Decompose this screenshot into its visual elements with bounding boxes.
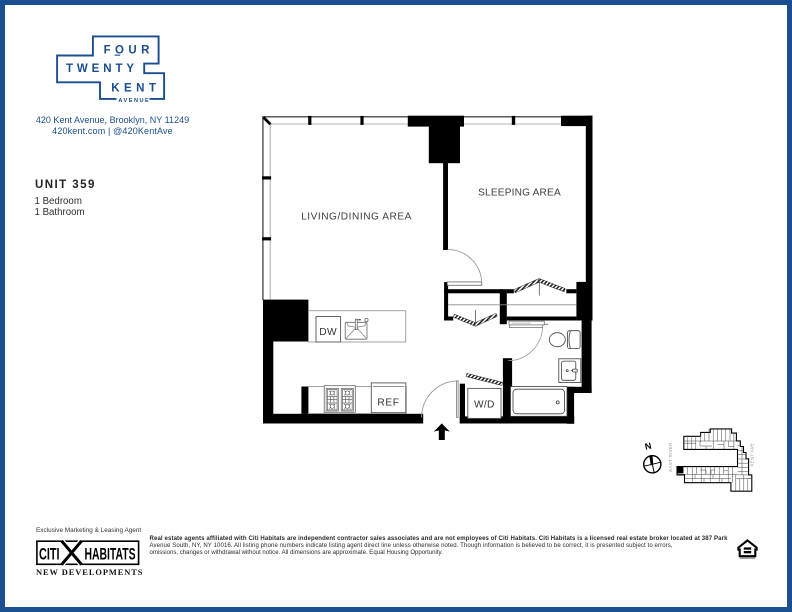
svg-text:LIVING/DINING AREA: LIVING/DINING AREA — [301, 212, 412, 223]
svg-text:SLEEPING AREA: SLEEPING AREA — [478, 188, 561, 199]
svg-text:KENT AVE: KENT AVE — [750, 443, 755, 467]
svg-text:W/D: W/D — [474, 399, 495, 410]
svg-text:REF: REF — [377, 397, 399, 408]
svg-text:N: N — [644, 441, 653, 452]
svg-text:EAST RIVER: EAST RIVER — [668, 442, 673, 472]
svg-text:DW: DW — [319, 327, 337, 338]
svg-text:HABITATS: HABITATS — [85, 546, 136, 564]
svg-text:CITI: CITI — [39, 546, 60, 564]
